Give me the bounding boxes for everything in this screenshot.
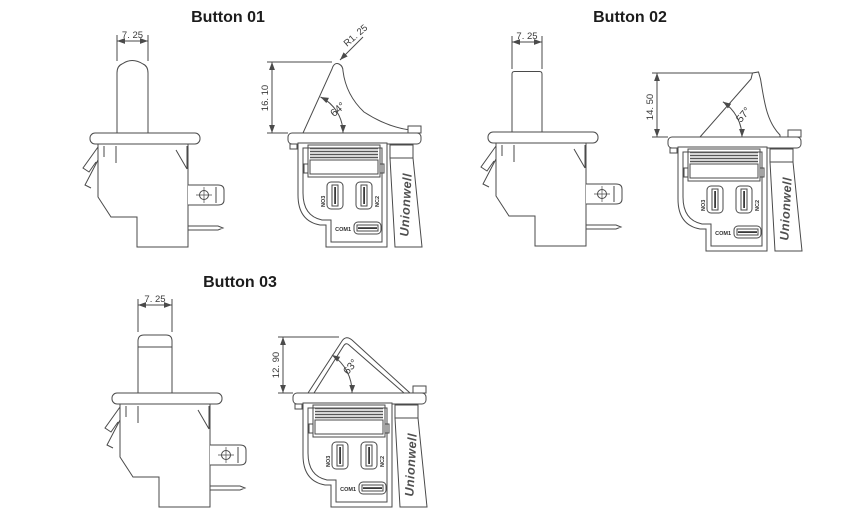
lever-triangular (700, 72, 780, 137)
switch-dimension-drawing: Unionwell NO3 NC2 COM1 Button (0, 0, 860, 520)
drawing-sheet: Unionwell NO3 NC2 COM1 Button (0, 0, 860, 520)
button-01-title: Button 01 (191, 9, 265, 26)
plunger-width-dim: 7. 25 (516, 31, 537, 42)
button-03-front-view: 12. 90 63° (271, 337, 427, 507)
plunger-capped (138, 335, 172, 393)
button-02-figure: Button 02 7. 25 14. 50 57° (481, 9, 802, 251)
button-02-title: Button 02 (593, 9, 667, 26)
lever-height-dim: 16. 10 (260, 85, 271, 111)
lever-height-dim: 12. 90 (271, 352, 282, 378)
lever-curved (303, 64, 410, 133)
lever-angle-label: 63° (341, 357, 360, 377)
button-01-figure: Button 01 7. 25 16. 10 R1. 25 64° (83, 9, 422, 247)
button-02-front-view: 14. 50 57° (645, 72, 802, 251)
plunger-width-dim: 7. 25 (122, 30, 143, 41)
lever-height-dim: 14. 50 (645, 94, 656, 120)
plunger-flat (512, 72, 542, 133)
tip-radius-label: R1. 25 (342, 23, 370, 50)
button-01-side-view: 7. 25 (83, 30, 224, 247)
button-03-figure: Button 03 7. 25 12. 90 63° (105, 274, 427, 507)
button-01-front-view: 16. 10 R1. 25 64° (260, 23, 422, 247)
button-03-side-view: 7. 25 (105, 294, 246, 507)
plunger-width-dim: 7. 25 (144, 294, 165, 305)
plunger-domed (117, 61, 148, 134)
button-02-side-view: 7. 25 (481, 31, 622, 246)
button-03-title: Button 03 (203, 274, 277, 291)
